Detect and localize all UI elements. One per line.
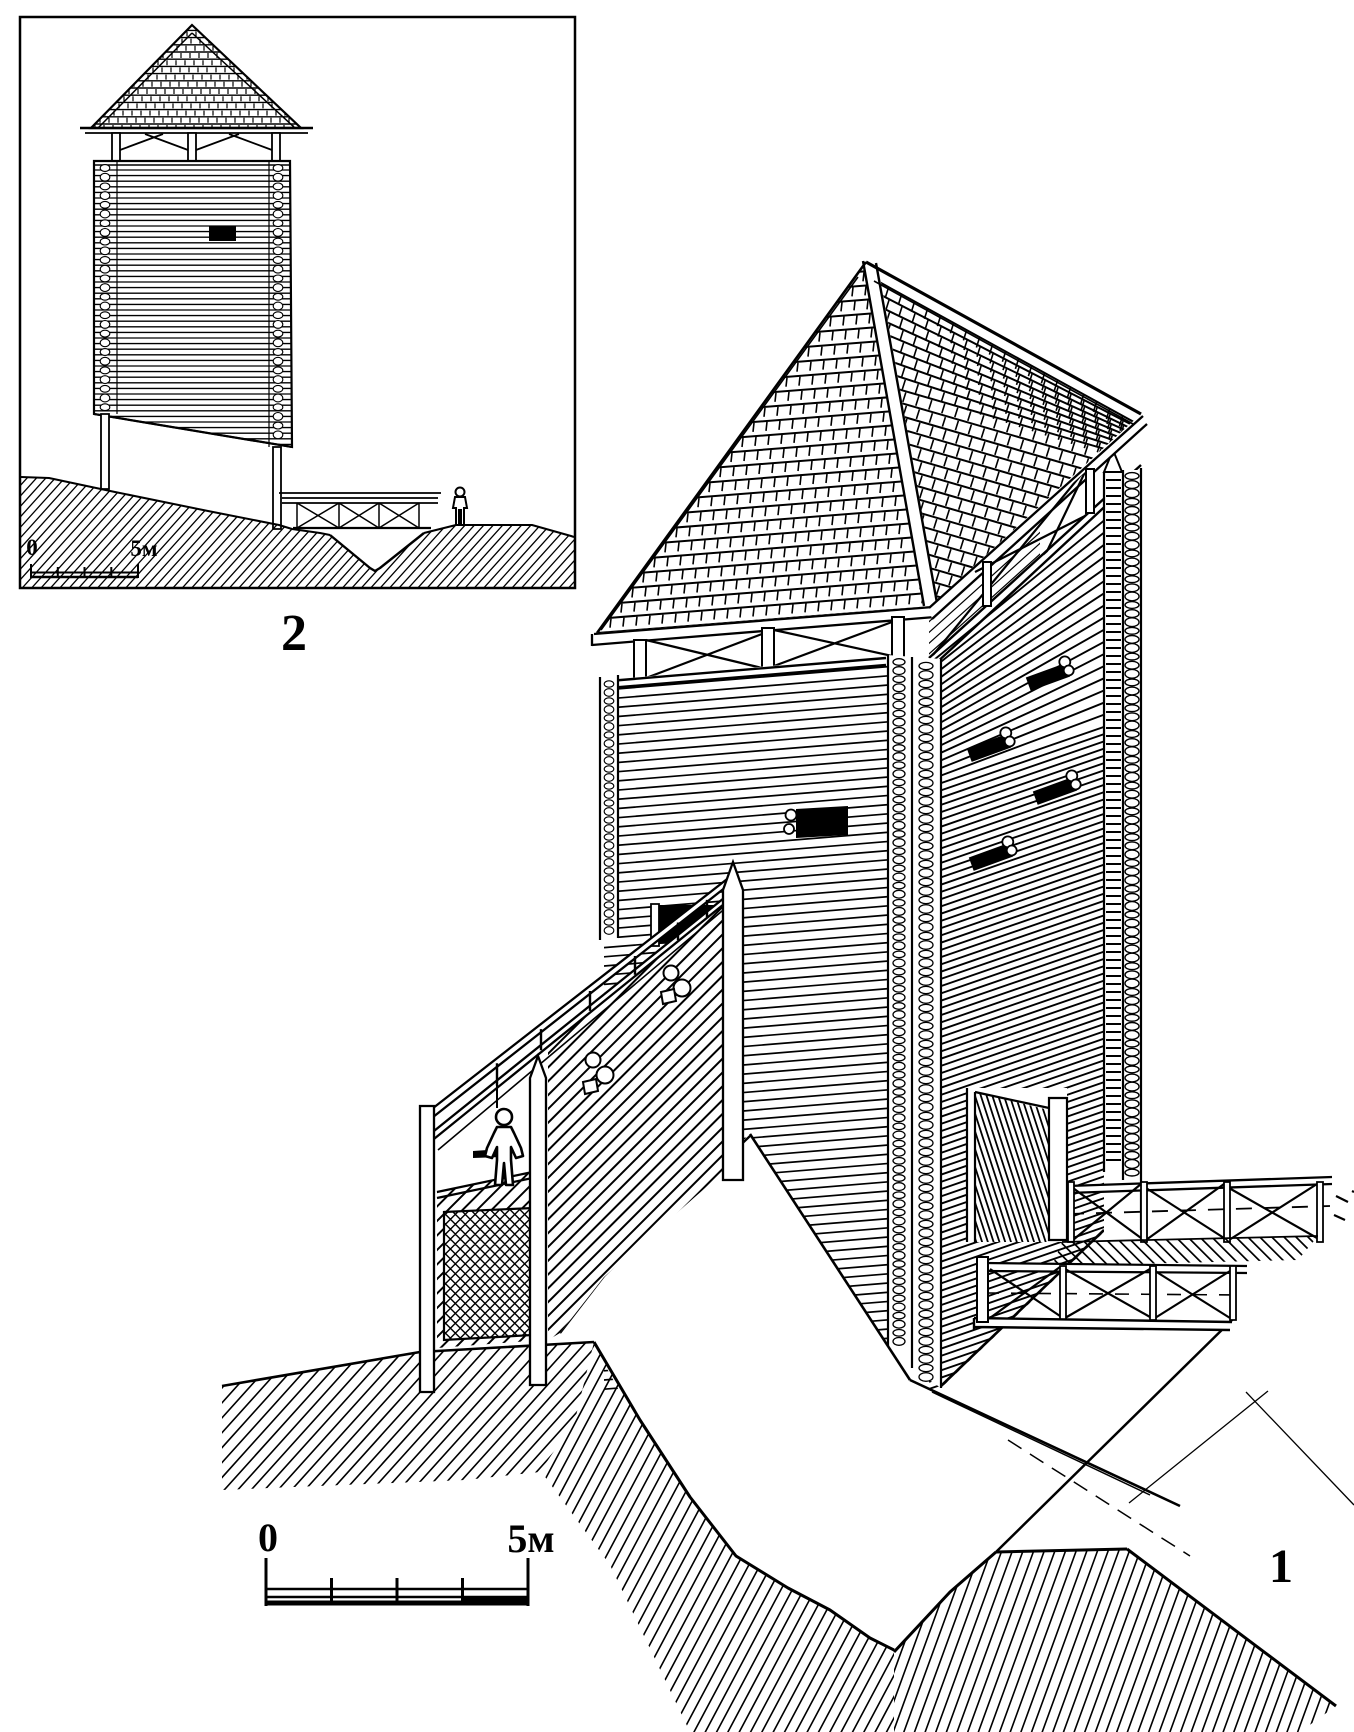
svg-text:5м: 5м: [130, 536, 157, 561]
svg-text:5м: 5м: [507, 1516, 554, 1561]
svg-text:0: 0: [26, 535, 38, 560]
svg-text:0: 0: [258, 1515, 278, 1560]
svg-text:1: 1: [1269, 1540, 1293, 1593]
svg-text:2: 2: [281, 605, 307, 662]
